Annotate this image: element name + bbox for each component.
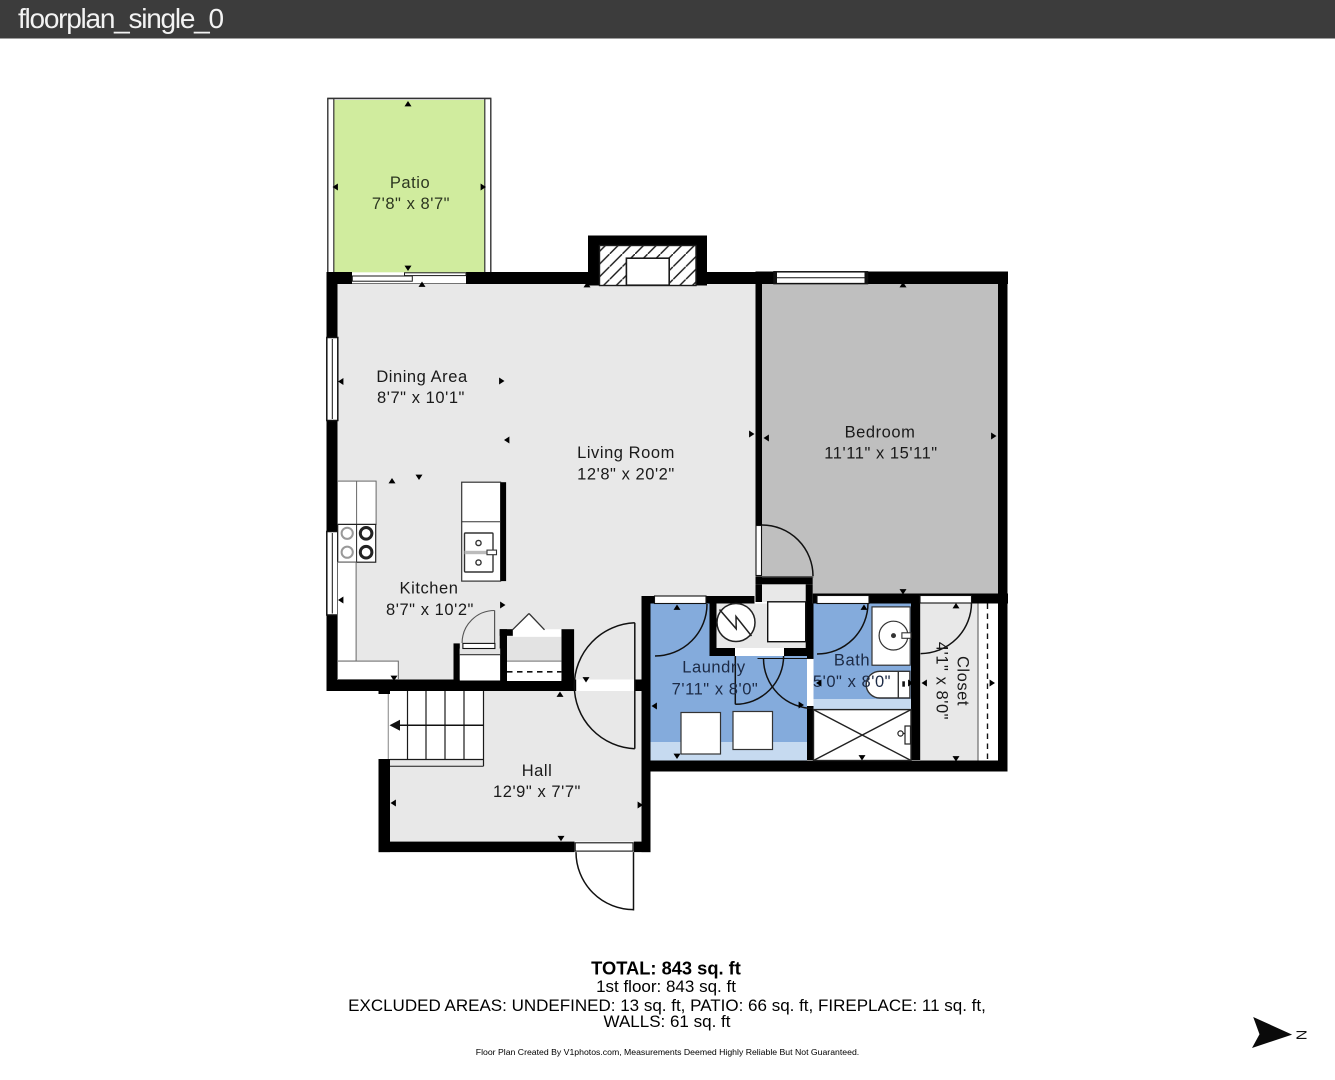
svg-text:4'1" x 8'0": 4'1" x 8'0" <box>933 642 951 720</box>
svg-text:Bedroom: Bedroom <box>845 424 916 442</box>
svg-text:Hall: Hall <box>522 762 553 780</box>
svg-text:7'11" x 8'0": 7'11" x 8'0" <box>672 681 759 699</box>
svg-text:1st floor: 843 sq. ft: 1st floor: 843 sq. ft <box>596 977 736 996</box>
svg-text:N: N <box>1293 1030 1309 1040</box>
svg-text:8'7" x 10'1": 8'7" x 10'1" <box>377 389 465 407</box>
svg-text:8'7" x 10'2": 8'7" x 10'2" <box>386 601 474 619</box>
svg-text:Living Room: Living Room <box>577 444 675 462</box>
svg-text:11'11" x 15'11": 11'11" x 15'11" <box>824 445 937 463</box>
svg-text:WALLS: 61 sq. ft: WALLS: 61 sq. ft <box>604 1012 731 1031</box>
svg-text:12'8" x 20'2": 12'8" x 20'2" <box>577 466 675 484</box>
svg-text:12'9" x 7'7": 12'9" x 7'7" <box>493 783 581 801</box>
svg-text:floorplan_single_0: floorplan_single_0 <box>18 3 223 34</box>
svg-text:Dining Area: Dining Area <box>376 368 468 386</box>
svg-text:Closet: Closet <box>954 656 972 706</box>
svg-text:5'0" x 8'0": 5'0" x 8'0" <box>813 673 891 691</box>
svg-text:Kitchen: Kitchen <box>400 580 459 598</box>
svg-text:Floor Plan Created By V1photos: Floor Plan Created By V1photos.com, Meas… <box>476 1047 859 1057</box>
svg-text:Bath: Bath <box>834 652 870 670</box>
svg-text:7'8" x 8'7": 7'8" x 8'7" <box>372 195 450 213</box>
svg-text:Laundry: Laundry <box>682 659 746 677</box>
svg-text:Patio: Patio <box>390 174 430 192</box>
svg-text:TOTAL: 843 sq. ft: TOTAL: 843 sq. ft <box>591 958 741 979</box>
